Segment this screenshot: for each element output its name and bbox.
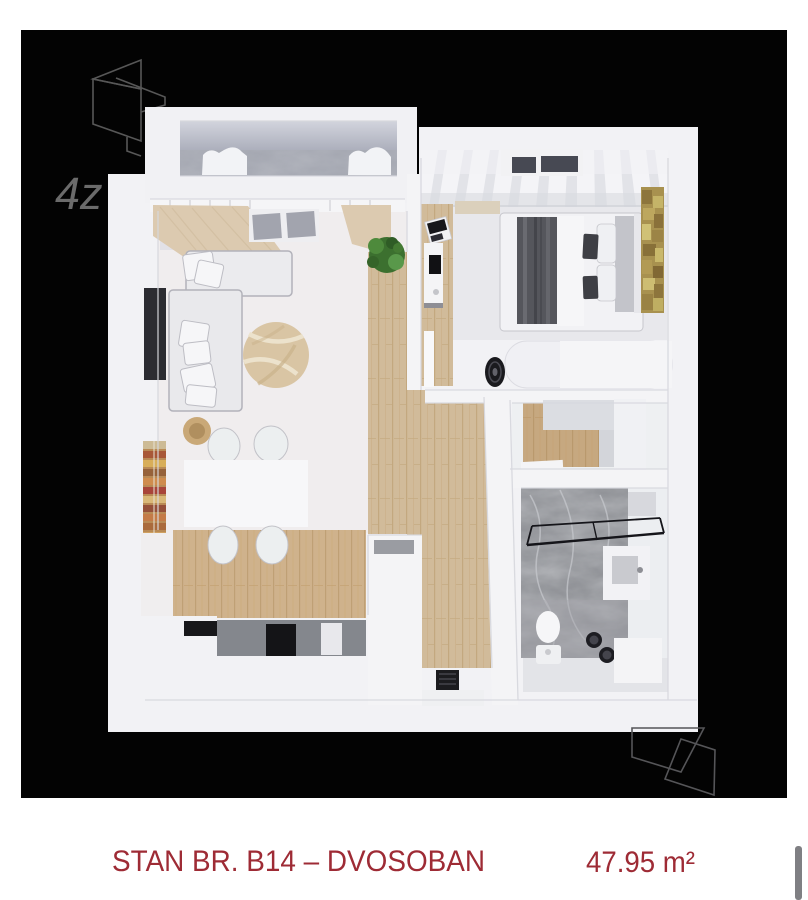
svg-text:47.95 m²: 47.95 m² (586, 846, 695, 879)
svg-text:4z: 4z (55, 168, 103, 219)
svg-text:STAN BR. B14 – DVOSOBAN: STAN BR. B14 – DVOSOBAN (112, 845, 485, 878)
